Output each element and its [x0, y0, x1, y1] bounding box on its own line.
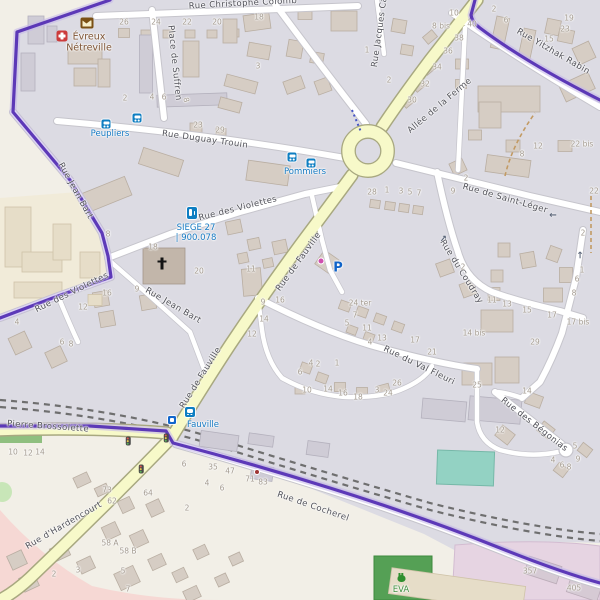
pitch-teal [436, 450, 494, 486]
turning-circle [559, 443, 573, 457]
map-canvas[interactable] [0, 0, 600, 600]
map-viewport[interactable]: Rue Christophe ColombPlace de SuffrenRue… [0, 0, 600, 600]
